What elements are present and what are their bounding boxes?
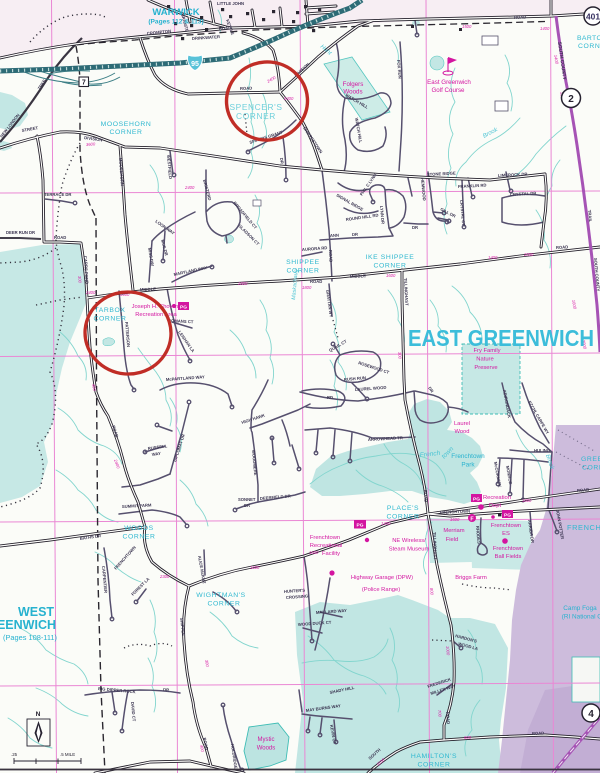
svg-text:Highway Garage (DPW): Highway Garage (DPW) [351, 575, 413, 581]
svg-text:GREENWICH: GREENWICH [0, 618, 56, 632]
svg-text:Fry Family: Fry Family [473, 348, 500, 354]
svg-text:1600: 1600 [250, 565, 260, 570]
svg-text:ROAD: ROAD [328, 250, 333, 263]
svg-text:Briggs Farm: Briggs Farm [455, 575, 487, 581]
svg-text:SHIPPEE: SHIPPEE [286, 259, 320, 266]
svg-text:ROAD: ROAD [514, 15, 527, 20]
svg-text:HULING: HULING [534, 448, 550, 453]
svg-text:ROAD: ROAD [532, 731, 545, 736]
svg-text:ROAD: ROAD [310, 279, 322, 284]
svg-text:CORNER: CORNER [236, 111, 276, 121]
svg-text:2400: 2400 [85, 290, 96, 295]
svg-text:CORNER: CORNER [207, 601, 240, 608]
svg-text:95: 95 [191, 61, 199, 68]
svg-text:DEER RUN DR: DEER RUN DR [6, 230, 35, 235]
svg-text:ANN: ANN [330, 233, 339, 238]
svg-text:SONNET: SONNET [238, 497, 256, 502]
svg-text:CORNER: CORNER [373, 263, 406, 270]
svg-text:DR: DR [352, 232, 358, 237]
svg-text:2000: 2000 [523, 252, 534, 257]
svg-text:IKE SHIPPEE: IKE SHIPPEE [366, 254, 415, 261]
svg-text:.25: .25 [11, 752, 18, 757]
svg-text:1800: 1800 [302, 285, 312, 290]
svg-text:EAST GREENWICH: EAST GREENWICH [408, 325, 594, 351]
svg-text:Frenchtown: Frenchtown [310, 535, 340, 541]
svg-text:WARWICK: WARWICK [152, 7, 199, 18]
svg-text:2: 2 [568, 94, 574, 105]
svg-text:ROAD: ROAD [556, 244, 569, 250]
svg-text:Facility: Facility [322, 551, 340, 557]
svg-text:ROAD: ROAD [240, 86, 253, 91]
svg-text:300: 300 [397, 352, 403, 360]
svg-text:(RI National G: (RI National G [562, 614, 600, 621]
svg-text:300: 300 [77, 276, 83, 284]
svg-text:1600: 1600 [450, 517, 460, 522]
svg-text:Frenchtown: Frenchtown [451, 453, 485, 460]
svg-text:Dept: Dept [489, 503, 502, 509]
svg-text:FRENCH: FRENCH [567, 523, 600, 532]
svg-text:Wood: Wood [454, 429, 469, 435]
svg-text:1000: 1000 [445, 646, 451, 656]
svg-text:Mystic: Mystic [258, 737, 275, 743]
svg-text:Woods: Woods [343, 89, 362, 96]
svg-text:DR: DR [279, 157, 285, 164]
svg-text:PG: PG [473, 496, 480, 502]
svg-text:Nature: Nature [476, 357, 493, 363]
svg-text:Woods: Woods [257, 746, 276, 752]
svg-text:CORN: CORN [578, 43, 600, 50]
svg-text:Field: Field [446, 537, 459, 543]
svg-text:Ball Fields: Ball Fields [495, 554, 522, 560]
svg-text:WIGHTMAN'S: WIGHTMAN'S [196, 592, 246, 599]
svg-text:Folgers: Folgers [343, 81, 364, 88]
svg-text:MIDDLE: MIDDLE [140, 286, 156, 292]
svg-text:BARTO: BARTO [577, 35, 600, 42]
svg-text:1800: 1800 [522, 498, 532, 503]
svg-text:PLACE'S: PLACE'S [387, 505, 419, 512]
svg-text:1400: 1400 [381, 521, 391, 526]
svg-text:1400: 1400 [540, 26, 550, 31]
svg-text:1400: 1400 [488, 255, 498, 260]
svg-text:HAMILTON'S: HAMILTON'S [411, 753, 457, 760]
svg-text:2300: 2300 [159, 574, 170, 579]
svg-text:1600: 1600 [386, 273, 396, 278]
svg-text:Recreational: Recreational [310, 543, 343, 549]
svg-text:2800: 2800 [237, 281, 248, 286]
svg-text:DR: DR [163, 687, 169, 692]
svg-text:700: 700 [437, 710, 443, 718]
svg-text:Frenchtown: Frenchtown [493, 546, 523, 552]
svg-text:RD: RD [327, 395, 333, 400]
svg-text:Steam Museum: Steam Museum [389, 547, 430, 553]
svg-text:800: 800 [464, 735, 472, 740]
svg-text:2400: 2400 [283, 96, 294, 101]
svg-text:GREEN: GREEN [581, 456, 600, 463]
svg-text:7: 7 [82, 80, 86, 87]
svg-text:PG: PG [357, 523, 364, 529]
svg-text:ES: ES [502, 531, 510, 537]
svg-text:CORNER: CORNER [417, 762, 450, 769]
svg-text:CORNER: CORNER [286, 268, 319, 275]
svg-text:DR: DR [412, 225, 418, 230]
svg-text:(Police Range): (Police Range) [362, 587, 400, 593]
svg-text:TERRACE DR: TERRACE DR [44, 192, 71, 197]
svg-text:Merriam: Merriam [443, 528, 464, 534]
svg-text:ROAD: ROAD [423, 490, 428, 503]
svg-text:WOODS: WOODS [124, 525, 153, 532]
svg-text:PG: PG [504, 512, 511, 518]
svg-text:800: 800 [429, 588, 435, 596]
svg-text:CORNER: CORNER [93, 316, 126, 323]
svg-text:Joseph H. Shovlin: Joseph H. Shovlin [132, 304, 179, 310]
svg-text:WEST: WEST [18, 605, 54, 619]
svg-text:CORNER: CORNER [386, 514, 419, 521]
svg-text:MOOSEHORN: MOOSEHORN [101, 121, 152, 128]
svg-text:TILLINGHAST: TILLINGHAST [432, 532, 438, 560]
svg-text:Laurel: Laurel [454, 421, 470, 427]
svg-text:(Pages 108-111): (Pages 108-111) [3, 633, 57, 642]
svg-text:Frenchtown: Frenchtown [491, 523, 521, 529]
svg-text:Golf Course: Golf Course [431, 87, 465, 94]
svg-text:NE Wireless/: NE Wireless/ [392, 538, 426, 544]
svg-text:4: 4 [588, 709, 594, 720]
svg-text:Camp Foga: Camp Foga [563, 605, 597, 612]
svg-text:ROAD: ROAD [54, 235, 66, 240]
svg-text:DR: DR [244, 503, 250, 508]
svg-text:PG: PG [180, 304, 187, 310]
svg-text:401: 401 [586, 11, 600, 21]
svg-text:Recreation Area: Recreation Area [135, 312, 177, 318]
svg-text:Recreation: Recreation [483, 495, 511, 501]
svg-text:East Greenwich: East Greenwich [427, 79, 471, 86]
svg-text:MIDDLE: MIDDLE [350, 273, 366, 279]
svg-text:1600: 1600 [309, 550, 319, 555]
svg-text:N: N [36, 711, 41, 718]
svg-text:3600: 3600 [86, 141, 96, 147]
svg-text:(Pages 112 & 113): (Pages 112 & 113) [148, 19, 203, 26]
svg-text:CORNER: CORNER [122, 534, 155, 541]
svg-text:CORNER: CORNER [109, 129, 142, 136]
svg-text:2400: 2400 [184, 185, 195, 190]
svg-text:LITTLE JOHN: LITTLE JOHN [217, 1, 244, 6]
svg-text:1500: 1500 [462, 24, 472, 29]
svg-text:TARBOX: TARBOX [94, 307, 125, 314]
svg-text:Park: Park [461, 462, 475, 469]
svg-text:.5 MILE: .5 MILE [60, 752, 75, 757]
svg-text:CORNE: CORNE [582, 465, 600, 472]
svg-text:Preserve: Preserve [474, 365, 497, 371]
